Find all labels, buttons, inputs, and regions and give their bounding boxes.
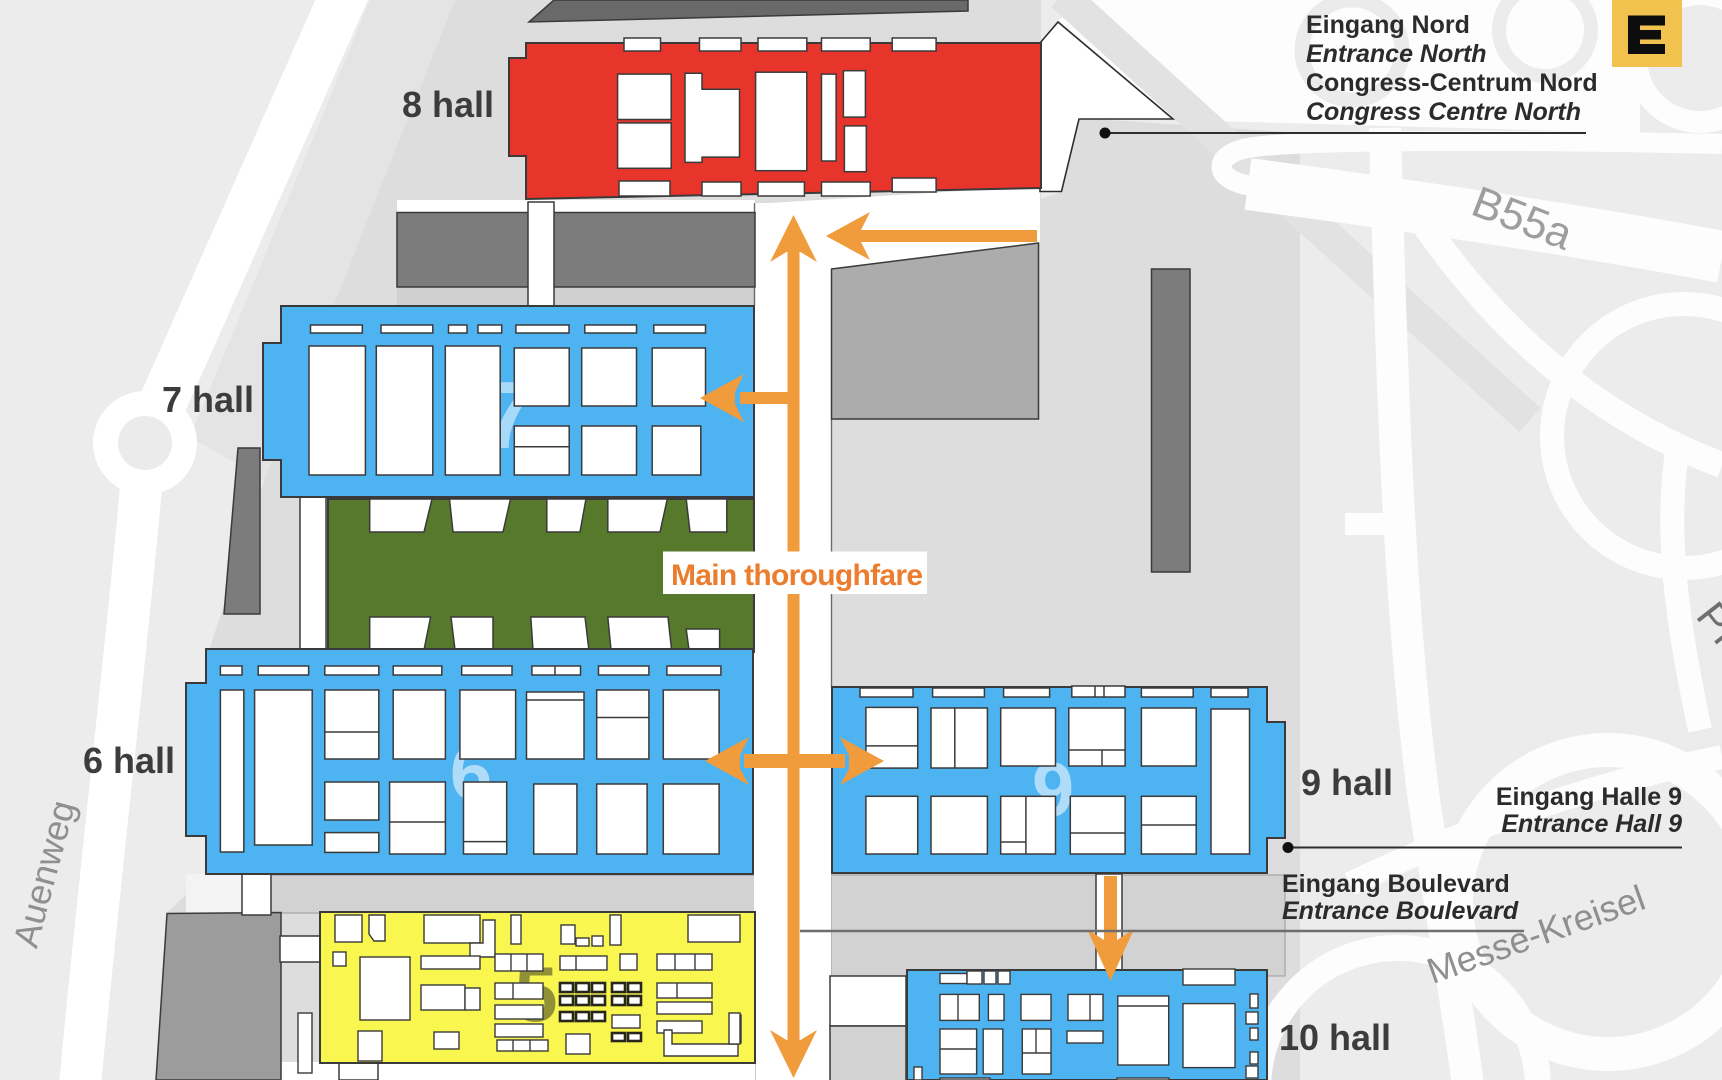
svg-text:8 hall: 8 hall <box>402 84 494 125</box>
svg-text:Entrance Boulevard: Entrance Boulevard <box>1282 897 1519 925</box>
svg-text:Main thoroughfare: Main thoroughfare <box>671 559 923 592</box>
svg-text:Eingang Halle 9: Eingang Halle 9 <box>1496 783 1682 811</box>
svg-text:9 hall: 9 hall <box>1301 762 1393 803</box>
svg-text:7 hall: 7 hall <box>162 379 254 420</box>
svg-text:Congress Centre North: Congress Centre North <box>1306 98 1581 126</box>
svg-text:10 hall: 10 hall <box>1279 1017 1391 1058</box>
svg-text:Entrance North: Entrance North <box>1306 40 1487 68</box>
svg-text:6 hall: 6 hall <box>83 740 175 781</box>
svg-text:Entrance Hall 9: Entrance Hall 9 <box>1501 810 1682 838</box>
svg-text:Eingang Boulevard: Eingang Boulevard <box>1282 870 1510 898</box>
svg-text:Congress-Centrum Nord: Congress-Centrum Nord <box>1306 69 1598 97</box>
svg-text:Eingang Nord: Eingang Nord <box>1306 11 1470 39</box>
